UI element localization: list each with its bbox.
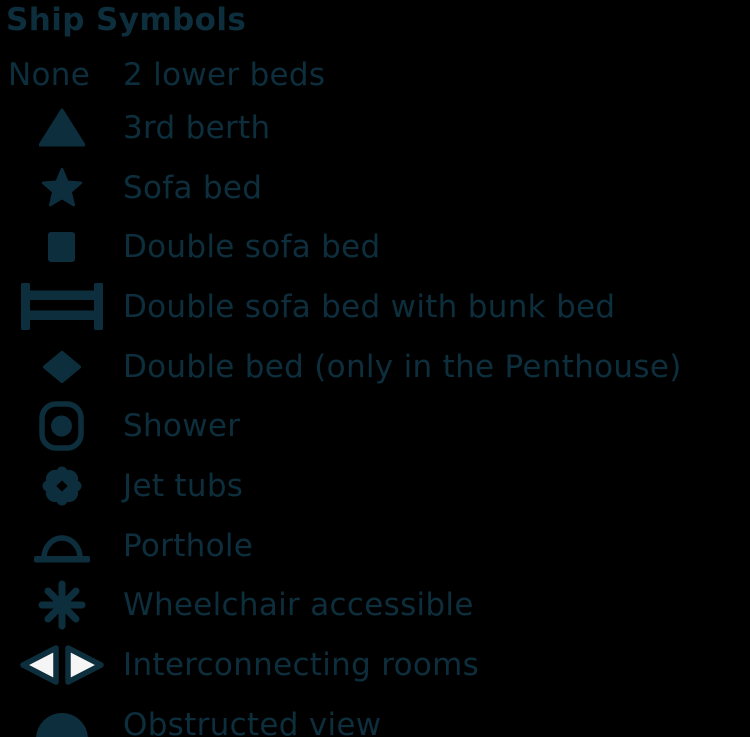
legend-row: Sofa bed xyxy=(0,158,750,218)
legend-row-label: 3rd berth xyxy=(123,110,270,146)
jet-tubs-icon xyxy=(0,463,123,509)
none-symbol-label: None xyxy=(0,57,123,93)
legend-row-label: Interconnecting rooms xyxy=(123,647,479,683)
legend-row: None 2 lower beds xyxy=(0,45,750,105)
legend-row: Double bed (only in the Penthouse) xyxy=(0,337,750,397)
legend-row: Obstructed view xyxy=(0,695,750,737)
legend-row: Interconnecting rooms xyxy=(0,635,750,695)
legend-row-label: Double sofa bed xyxy=(123,229,381,265)
page-title: Ship Symbols xyxy=(6,2,246,38)
legend-row-label: Porthole xyxy=(123,528,253,564)
bunk-bed-icon xyxy=(0,283,123,330)
diamond-icon xyxy=(0,351,123,383)
legend-row: Jet tubs xyxy=(0,456,750,516)
legend-row-label: Obstructed view xyxy=(123,707,381,737)
legend-row: Shower xyxy=(0,396,750,456)
legend-rows: 3rd berth Sofa bed Double sofa bed xyxy=(0,98,750,737)
legend-row: Double sofa bed with bunk bed xyxy=(0,277,750,337)
interconnecting-icon xyxy=(0,643,123,687)
legend-row: Double sofa bed xyxy=(0,217,750,277)
legend-row-label: Double bed (only in the Penthouse) xyxy=(123,349,682,385)
shower-icon xyxy=(0,401,123,451)
ship-symbols-legend: Ship Symbols None 2 lower beds 3rd berth… xyxy=(0,0,750,737)
asterisk-icon xyxy=(0,580,123,630)
obstructed-view-icon xyxy=(0,711,123,737)
legend-row-label: Double sofa bed with bunk bed xyxy=(123,289,615,325)
porthole-icon xyxy=(0,527,123,565)
legend-row-label: Jet tubs xyxy=(123,468,243,504)
triangle-icon xyxy=(0,108,123,147)
legend-row-label: Sofa bed xyxy=(123,170,262,206)
star-icon xyxy=(0,168,123,207)
legend-row: 3rd berth xyxy=(0,98,750,158)
legend-row: Porthole xyxy=(0,516,750,576)
square-icon xyxy=(0,231,123,263)
legend-row: Wheelchair accessible xyxy=(0,576,750,636)
legend-row-label: Wheelchair accessible xyxy=(123,587,474,623)
legend-row-label: Shower xyxy=(123,408,240,444)
legend-row-label: 2 lower beds xyxy=(123,57,325,93)
